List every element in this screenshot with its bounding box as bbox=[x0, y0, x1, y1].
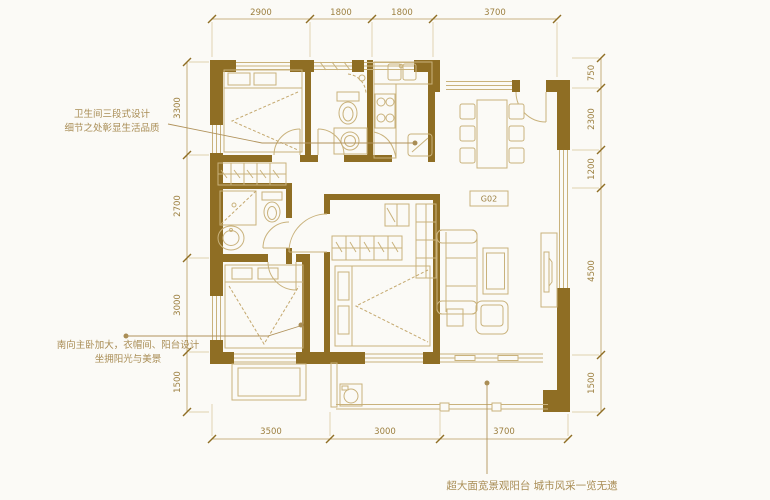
dim-bottom-2: 3000 bbox=[374, 427, 396, 437]
armchair-symbol bbox=[476, 301, 508, 334]
dim-right-4: 4500 bbox=[587, 260, 597, 282]
annotation-bedroom: 南向主卧加大，衣帽间、阳台设计 坐拥阳光与美景 bbox=[57, 323, 304, 366]
stove-icon bbox=[375, 94, 395, 128]
washbasin-icon bbox=[334, 128, 367, 154]
leader-dot bbox=[299, 323, 304, 328]
sofa-symbol bbox=[437, 230, 477, 314]
annotation-bathroom: 卫生间三段式设计 细节之处彰显生活品质 bbox=[64, 108, 417, 146]
closet-cabinet-symbol bbox=[385, 204, 436, 278]
bed-symbol bbox=[224, 70, 302, 152]
dim-left-1: 3300 bbox=[173, 97, 183, 119]
dim-top-3: 1800 bbox=[391, 8, 413, 18]
bathroom1-fixtures bbox=[334, 74, 367, 154]
annotation-balcony-text: 超大面宽景观阳台 城市风采一览无遗 bbox=[446, 479, 618, 492]
dining-furniture: G02 bbox=[460, 100, 524, 206]
dim-left-3: 3000 bbox=[173, 294, 183, 316]
annotation-bedroom-line1: 南向主卧加大，衣帽间、阳台设计 bbox=[57, 339, 200, 351]
dim-right-2: 2300 bbox=[587, 108, 597, 130]
balcony-fixtures bbox=[232, 364, 362, 406]
washing-machine-icon bbox=[340, 384, 362, 406]
dim-top-4: 3700 bbox=[484, 8, 506, 18]
toilet-icon bbox=[337, 92, 359, 124]
dim-bottom-3: 3700 bbox=[493, 427, 515, 437]
equipment-platform bbox=[232, 364, 306, 400]
dimension-right: 750 2300 1200 4500 1500 bbox=[572, 54, 605, 416]
floor-plan-page: G02 bbox=[0, 0, 770, 500]
master-bedroom-furniture bbox=[332, 204, 436, 346]
shower-icon bbox=[348, 74, 366, 94]
leader-dot bbox=[413, 141, 418, 146]
dimension-left: 3300 2700 3000 1500 bbox=[173, 58, 209, 416]
wardrobe-row-symbol bbox=[332, 236, 402, 260]
annotation-bathroom-line1: 卫生间三段式设计 bbox=[74, 108, 151, 120]
kitchen-fixtures bbox=[374, 62, 432, 158]
dim-left-4: 1500 bbox=[173, 371, 183, 393]
dim-left-2: 2700 bbox=[173, 195, 183, 217]
dim-top-2: 1800 bbox=[330, 8, 352, 18]
dimension-top: 2900 1800 1800 3700 bbox=[208, 8, 561, 77]
bathroom2-fixtures bbox=[218, 191, 282, 250]
toilet-icon bbox=[262, 192, 282, 222]
dimension-bottom: 3500 3000 3700 bbox=[208, 404, 572, 443]
shower-stall-symbol bbox=[220, 191, 256, 225]
dim-right-5: 1500 bbox=[587, 372, 597, 394]
floor-plan-drawing: G02 bbox=[0, 0, 770, 500]
dim-top-1: 2900 bbox=[250, 8, 272, 18]
tv-cabinet-symbol bbox=[541, 233, 557, 307]
coffee-table-symbol bbox=[483, 248, 508, 294]
dining-table-symbol bbox=[477, 100, 507, 168]
wardrobe-symbol bbox=[218, 163, 286, 185]
unit-label-box: G02 bbox=[470, 191, 508, 206]
unit-label: G02 bbox=[481, 195, 497, 204]
annotation-bedroom-line2: 坐拥阳光与美景 bbox=[95, 353, 162, 365]
living-room-furniture bbox=[437, 230, 557, 334]
dim-right-3: 1200 bbox=[587, 158, 597, 180]
dim-bottom-1: 3500 bbox=[260, 427, 282, 437]
dim-right-1: 750 bbox=[587, 65, 597, 81]
side-table-symbol bbox=[447, 309, 463, 326]
annotation-balcony: 超大面宽景观阳台 城市风采一览无遗 bbox=[446, 381, 618, 493]
bedroom1-furniture bbox=[218, 70, 302, 185]
annotation-bathroom-line2: 细节之处彰显生活品质 bbox=[64, 122, 160, 134]
